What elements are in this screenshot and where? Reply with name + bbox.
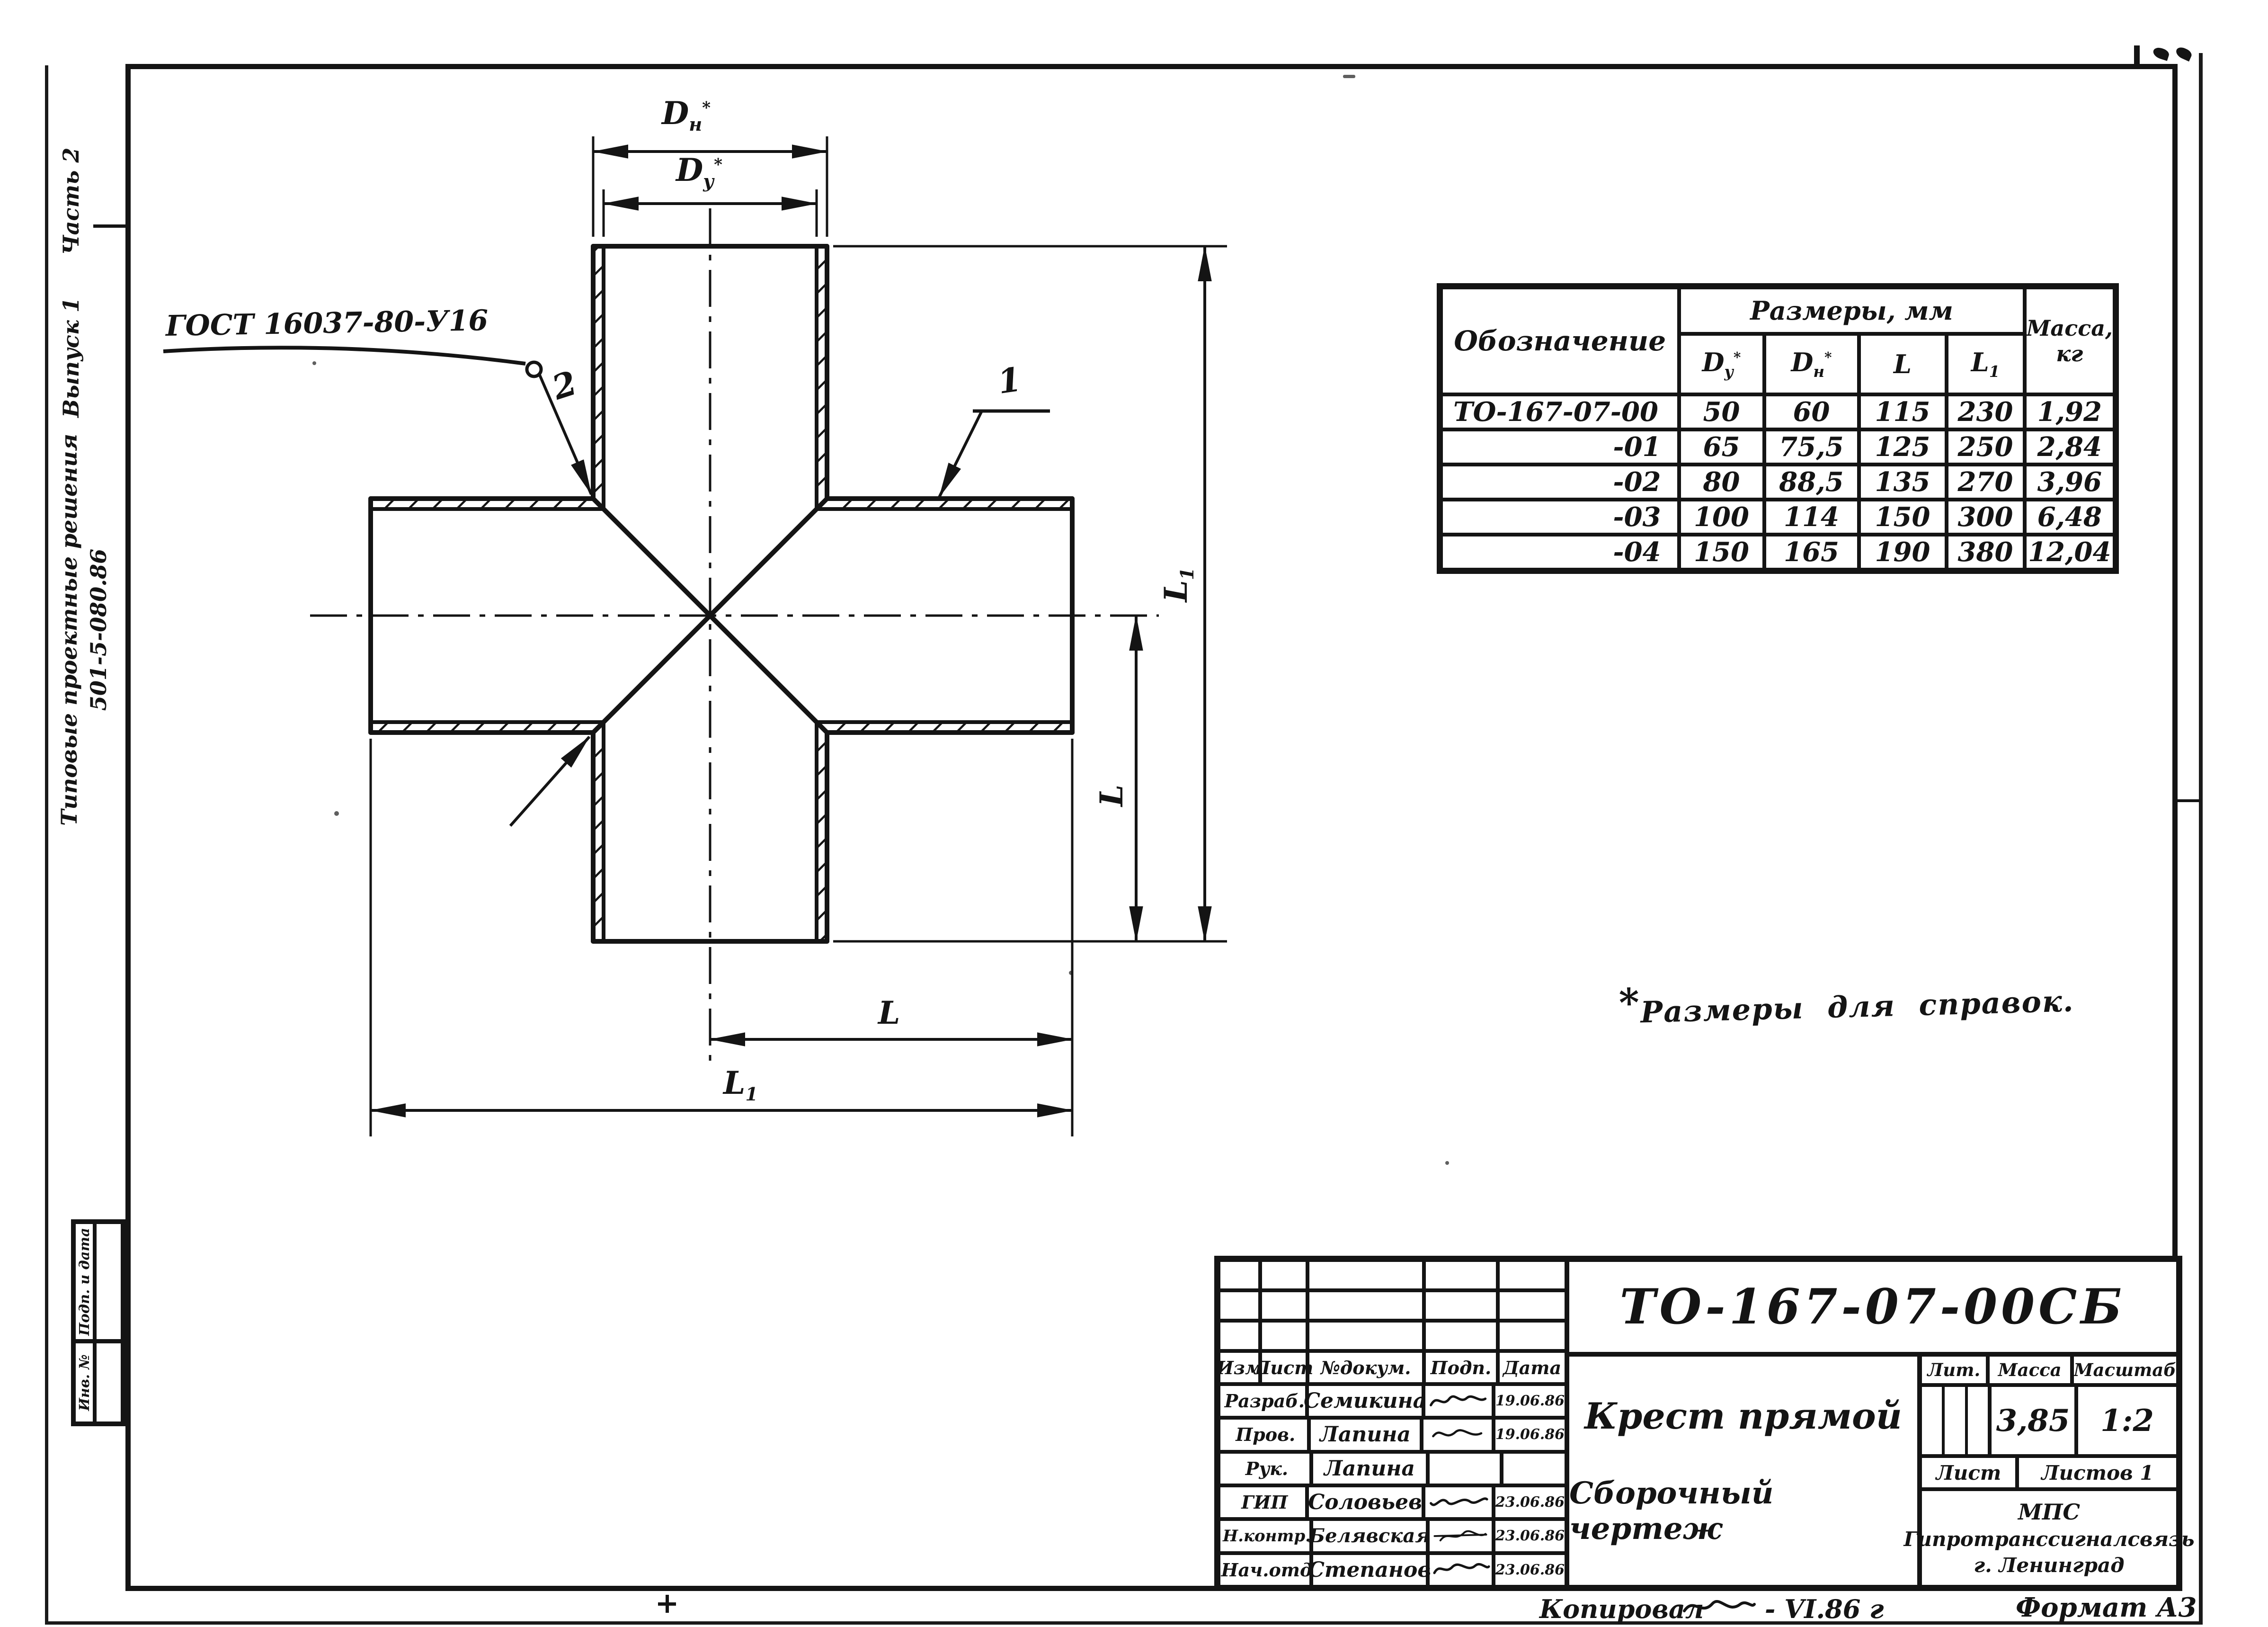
col-header-designation: Обозначение xyxy=(1440,286,1679,394)
signature-row: Нач.отд Степанов 23.06.86 xyxy=(1220,1555,1565,1585)
signature-scribble xyxy=(1430,1521,1495,1551)
cross-outline xyxy=(371,246,1072,941)
dimensions-table: Обозначение Размеры, мм Масса, кг Dу* Dн… xyxy=(1437,283,2119,574)
title-block: Изм Лист №докум. Подп. Дата Разраб. Семи… xyxy=(1214,1256,2182,1591)
cell-designation: -02 xyxy=(1440,465,1679,500)
cell-l1: 230 xyxy=(1947,394,2025,429)
extension-lines xyxy=(371,136,1227,1136)
col-header-sizes: Размеры, мм xyxy=(1679,286,2025,334)
col-header-mass: Масса, кг xyxy=(2025,286,2116,394)
cell-mass: 6,48 xyxy=(2025,500,2116,535)
cell-l: 115 xyxy=(1859,394,1947,429)
sig-date xyxy=(1503,1454,1565,1484)
org-line-2: Гипротранссигналсвязь xyxy=(1903,1528,2194,1551)
cell-l1: 270 xyxy=(1947,465,2025,500)
leader-lines xyxy=(163,348,1050,826)
change-row-empty xyxy=(1220,1323,1565,1353)
title-line-2: Сборочный чертеж xyxy=(1569,1475,1917,1547)
sig-name: Лапина xyxy=(1313,1454,1430,1484)
col-header-l1: L1 xyxy=(1947,334,2025,394)
stamp-label-cell: Инв. № xyxy=(76,1343,97,1421)
mass-value: 3,85 xyxy=(1992,1387,2078,1454)
scale-label: Масштаб xyxy=(2074,1357,2176,1383)
cell-dn: 75,5 xyxy=(1764,429,1859,465)
signature-row: Н.контр. Белявская 23.06.86 xyxy=(1220,1521,1565,1555)
sidebar-part: Часть 2 xyxy=(71,201,178,227)
sig-role: ГИП xyxy=(1220,1487,1309,1517)
change-header-row: Изм Лист №докум. Подп. Дата xyxy=(1220,1353,1565,1386)
sig-role: Н.контр. xyxy=(1220,1521,1313,1551)
dim-label-du: Dу* xyxy=(676,152,722,192)
cell-l: 135 xyxy=(1859,465,1947,500)
col-header-du: Dу* xyxy=(1679,334,1764,394)
cell-designation: -01 xyxy=(1440,429,1679,465)
change-row-empty xyxy=(1220,1262,1565,1292)
cell-du: 65 xyxy=(1679,429,1764,465)
lit-label: Лит. xyxy=(1922,1357,1990,1383)
pipe-wall-hatching xyxy=(373,248,1070,939)
signature-scribble xyxy=(1425,1386,1495,1416)
scanned-drawing-sheet: { "sidebar": { "part": "Часть 2", "issue… xyxy=(0,0,2268,1627)
sig-role: Рук. xyxy=(1220,1454,1313,1484)
sig-date: 19.06.86 xyxy=(1495,1386,1565,1416)
table-row: -01 65 75,5 125 250 2,84 xyxy=(1440,429,2116,465)
signature-scribble xyxy=(1425,1487,1495,1517)
col-header-dn: Dн* xyxy=(1764,334,1859,394)
cell-du: 150 xyxy=(1679,535,1764,571)
dim-label-l1-right: L1 xyxy=(1178,585,1212,626)
signature-scribble xyxy=(1430,1555,1495,1585)
lit-mass-scale-values: 3,85 1:2 xyxy=(1922,1387,2176,1458)
sidebar-issue: Выпуск 1 xyxy=(71,358,191,383)
cell-designation: ТО-167-07-00 xyxy=(1440,394,1679,429)
sig-role: Пров. xyxy=(1220,1420,1311,1449)
col-header-l: L xyxy=(1859,334,1947,394)
sheet-label: Лист xyxy=(1922,1458,2019,1487)
sheet-row: Лист Листов 1 xyxy=(1922,1458,2176,1491)
org-line-3: г. Ленинград xyxy=(1974,1554,2125,1577)
stamp-value-cell xyxy=(97,1224,121,1339)
cell-designation: -03 xyxy=(1440,500,1679,535)
cell-l1: 300 xyxy=(1947,500,2025,535)
stamp-podp-i-data: Подп. и дата xyxy=(76,1224,121,1343)
dim-label-l-bottom: L xyxy=(878,994,900,1031)
scale-value: 1:2 xyxy=(2078,1387,2176,1454)
inv-no-label: Инв. № xyxy=(76,1354,92,1411)
pipe-inner-edges xyxy=(371,246,1072,941)
change-row-empty xyxy=(1220,1292,1565,1323)
sig-role: Разраб. xyxy=(1220,1386,1309,1416)
sig-date: 23.06.86 xyxy=(1495,1555,1565,1585)
cell-l: 125 xyxy=(1859,429,1947,465)
cell-dn: 60 xyxy=(1764,394,1859,429)
cell-l: 150 xyxy=(1859,500,1947,535)
table-row: ТО-167-07-00 50 60 115 230 1,92 xyxy=(1440,394,2116,429)
podp-i-data-label: Подп. и дата xyxy=(76,1228,92,1336)
lit-mass-scale-header: Лит. Масса Масштаб xyxy=(1922,1357,2176,1387)
title-block-change-table: Изм Лист №докум. Подп. Дата Разраб. Семи… xyxy=(1220,1262,1569,1585)
signature-scribble xyxy=(1423,1420,1495,1449)
cell-mass: 2,84 xyxy=(2025,429,2116,465)
sig-date: 19.06.86 xyxy=(1495,1420,1565,1449)
signature-empty xyxy=(1430,1454,1503,1484)
dimension-lines xyxy=(371,152,1205,1110)
cell-mass: 1,92 xyxy=(2025,394,2116,429)
title-line-1: Крест прямой xyxy=(1584,1395,1902,1437)
cell-dn: 88,5 xyxy=(1764,465,1859,500)
organization: МПС Гипротранссигналсвязь г. Ленинград xyxy=(1922,1491,2176,1585)
sidebar-code: 501-5-080.86 xyxy=(98,630,260,655)
dim-label-dn: Dн* xyxy=(662,95,711,135)
sig-date: 23.06.86 xyxy=(1495,1521,1565,1551)
margin-stamp-boxes: Подп. и дата Инв. № xyxy=(71,1219,125,1426)
stamp-inv-no: Инв. № xyxy=(76,1343,121,1421)
cell-du: 50 xyxy=(1679,394,1764,429)
cell-l1: 380 xyxy=(1947,535,2025,571)
stamp-label-cell: Подп. и дата xyxy=(76,1224,97,1339)
header-data: Дата xyxy=(1500,1353,1565,1382)
org-line-1: МПС xyxy=(2018,1499,2080,1525)
sig-name: Лапина xyxy=(1311,1420,1424,1449)
sig-name: Семикина xyxy=(1309,1386,1425,1416)
lit-cells xyxy=(1922,1387,1992,1454)
stamp-value-cell xyxy=(97,1343,121,1421)
copied-label: Копировал xyxy=(1539,1594,1704,1624)
cell-du: 80 xyxy=(1679,465,1764,500)
sheets-label: Листов 1 xyxy=(2019,1458,2176,1487)
mass-label: Масса xyxy=(1990,1357,2074,1383)
signature-row: Рук. Лапина xyxy=(1220,1454,1565,1487)
cell-dn: 165 xyxy=(1764,535,1859,571)
document-number: ТО-167-07-00СБ xyxy=(1569,1262,2176,1357)
signature-row: ГИП Соловьев 23.06.86 xyxy=(1220,1487,1565,1521)
cell-du: 100 xyxy=(1679,500,1764,535)
gost-weld-callout: ГОСТ 16037-80-У16 xyxy=(165,304,488,343)
cell-mass: 3,96 xyxy=(2025,465,2116,500)
table-row: -03 100 114 150 300 6,48 xyxy=(1440,500,2116,535)
cell-designation: -04 xyxy=(1440,535,1679,571)
sig-name: Белявская xyxy=(1313,1521,1430,1551)
note-asterisk: * xyxy=(1619,980,1641,1026)
table-row: -02 80 88,5 135 270 3,96 xyxy=(1440,465,2116,500)
signature-row: Пров. Лапина 19.06.86 xyxy=(1220,1420,1565,1453)
dim-label-l-right: L xyxy=(1112,796,1133,832)
drawing-title: Крест прямой Сборочный чертеж xyxy=(1569,1357,1922,1585)
header-ndokum: №докум. xyxy=(1309,1353,1426,1382)
copied-date: - VI.86 г xyxy=(1765,1594,1884,1624)
sig-role: Нач.отд xyxy=(1220,1555,1313,1585)
sig-date: 23.06.86 xyxy=(1495,1487,1565,1517)
signature-row: Разраб. Семикина 19.06.86 xyxy=(1220,1386,1565,1420)
dim-label-l1-bottom: L1 xyxy=(723,1064,758,1105)
format-label: Формат А3 xyxy=(2016,1592,2197,1623)
table-row: -04 150 165 190 380 12,04 xyxy=(1440,535,2116,571)
copied-signature-scribble xyxy=(1681,1595,1756,1619)
cell-l1: 250 xyxy=(1947,429,2025,465)
cell-dn: 114 xyxy=(1764,500,1859,535)
header-list: Лист xyxy=(1262,1353,1309,1382)
header-podp: Подп. xyxy=(1426,1353,1500,1382)
sig-name: Соловьев xyxy=(1309,1487,1425,1517)
sig-name: Степанов xyxy=(1313,1555,1430,1585)
cell-mass: 12,04 xyxy=(2025,535,2116,571)
cell-l: 190 xyxy=(1859,535,1947,571)
